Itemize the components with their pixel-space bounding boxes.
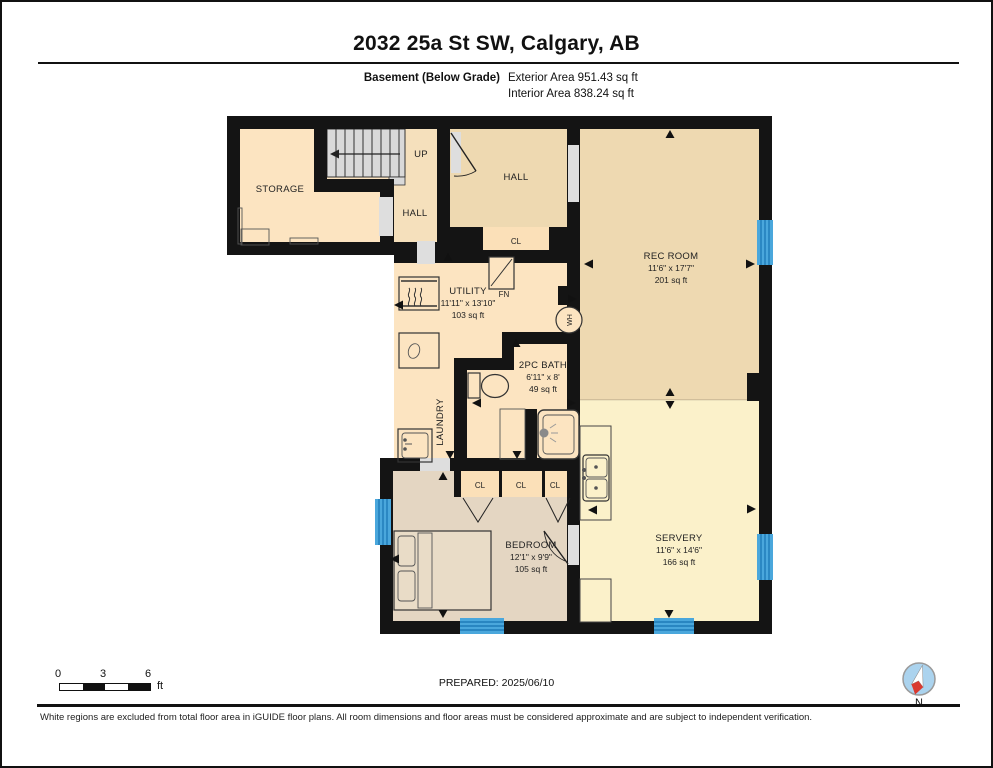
window-servery-south bbox=[654, 618, 694, 634]
window-servery-east bbox=[757, 534, 773, 580]
label-hall-upper: HALL bbox=[504, 172, 529, 183]
window-bedroom-west bbox=[375, 499, 391, 545]
label-bedroom-dims: 12'1" x 9'9" bbox=[510, 552, 552, 562]
label-bath: 2PC BATH bbox=[519, 360, 567, 371]
label-utility-area: 103 sq ft bbox=[452, 310, 485, 320]
label-utility: UTILITY bbox=[449, 286, 487, 297]
label-utility-dims: 11'11" x 13'10" bbox=[441, 298, 496, 308]
label-servery: SERVERY bbox=[655, 533, 703, 544]
window-rec-east bbox=[757, 220, 773, 265]
disclaimer-text: White regions are excluded from total fl… bbox=[40, 712, 960, 723]
label-cl1: CL bbox=[475, 481, 486, 490]
label-bedroom: BEDROOM bbox=[505, 540, 556, 551]
furnace-icon bbox=[489, 257, 514, 289]
footer-rule bbox=[37, 704, 960, 707]
label-up: UP bbox=[414, 149, 428, 160]
bed-icon bbox=[394, 531, 491, 610]
label-storage: STORAGE bbox=[256, 184, 304, 195]
label-servery-dims: 11'6" x 14'6" bbox=[656, 545, 702, 555]
label-rec-area: 201 sq ft bbox=[655, 275, 688, 285]
label-cl3: CL bbox=[550, 481, 561, 490]
label-water-heater: WH bbox=[567, 314, 574, 326]
staircase bbox=[327, 129, 405, 185]
compass-label: N bbox=[897, 697, 941, 709]
label-bath-area: 49 sq ft bbox=[529, 384, 558, 394]
label-laundry: LAUNDRY bbox=[435, 398, 446, 446]
label-rec-dims: 11'6" x 17'7" bbox=[648, 263, 694, 273]
bath-sink-icon bbox=[538, 410, 579, 459]
toilet-icon bbox=[468, 373, 509, 398]
floor-plan: STORAGE UP HALL HALL CL UTILITY 11'11" x… bbox=[2, 2, 993, 768]
floorplan-page: 2032 25a St SW, Calgary, AB Basement (Be… bbox=[0, 0, 993, 768]
prepared-date: PREPARED: 2025/06/10 bbox=[2, 677, 991, 689]
label-hall-stair: HALL bbox=[403, 208, 428, 219]
label-furnace: FN bbox=[499, 290, 510, 299]
label-bedroom-area: 105 sq ft bbox=[515, 564, 548, 574]
window-bedroom-south bbox=[460, 618, 504, 634]
label-cl-top: CL bbox=[511, 237, 522, 246]
rec-servery-boundary bbox=[580, 399, 759, 401]
label-servery-area: 166 sq ft bbox=[663, 557, 696, 567]
label-rec: REC ROOM bbox=[644, 251, 699, 262]
label-cl2: CL bbox=[516, 481, 527, 490]
label-bath-dims: 6'11" x 8' bbox=[526, 372, 560, 382]
